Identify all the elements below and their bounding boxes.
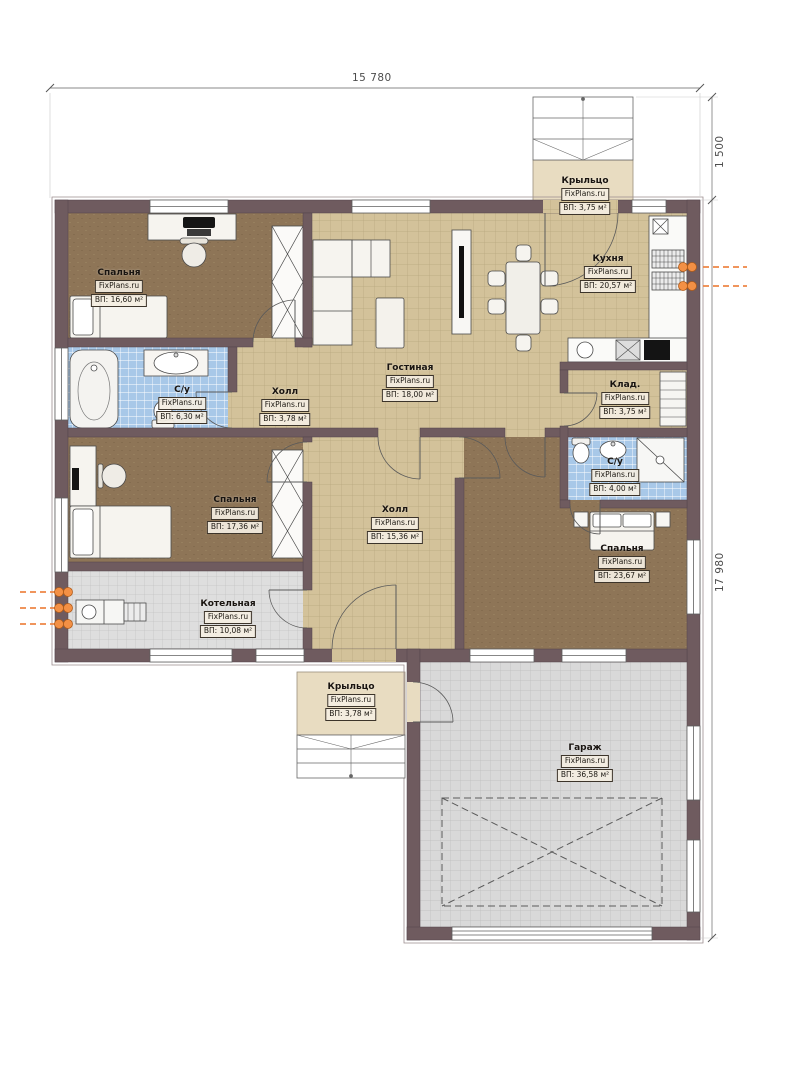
wardrobe-icon	[272, 450, 303, 558]
doorway-porch-bottom	[332, 649, 396, 662]
bathtub-icon	[70, 350, 118, 428]
garage-gate	[452, 927, 652, 940]
doorway-garage-side	[407, 682, 420, 722]
window	[687, 540, 700, 614]
porch-bottom-steps	[297, 735, 405, 778]
shower-icon	[637, 438, 684, 482]
window	[55, 498, 68, 572]
window	[352, 200, 430, 213]
wardrobe-icon	[272, 226, 303, 338]
doorway-porch-top	[543, 200, 618, 213]
window	[687, 726, 700, 800]
dimension-porch-depth: 1 500	[714, 135, 726, 168]
coffee-table-icon	[376, 298, 404, 348]
window	[150, 200, 228, 213]
window	[55, 348, 68, 420]
porch-top-steps	[533, 97, 633, 160]
storage-shelf-icon	[660, 372, 686, 426]
toilet-icon	[152, 401, 174, 428]
bed-icon	[70, 296, 167, 338]
wall-garage-top	[420, 649, 687, 662]
stove-icon	[644, 340, 670, 360]
bed-icon	[70, 506, 171, 558]
floor-garage	[420, 662, 687, 927]
boiler-icon	[76, 600, 146, 624]
window	[562, 649, 626, 662]
window	[632, 200, 666, 213]
floor-plan-canvas: 15 780 1 500 17 980 Спальня FixPlans.ru …	[0, 0, 792, 1080]
dimension-right-height: 17 980	[714, 552, 726, 592]
toilet-icon	[572, 438, 590, 463]
window	[687, 840, 700, 912]
desk-icon	[70, 446, 96, 506]
tv-stand-icon	[452, 230, 471, 334]
office-chair-icon	[98, 464, 126, 488]
sink-icon	[600, 441, 626, 459]
sink-icon	[144, 350, 208, 376]
porch-top-slab	[533, 160, 633, 202]
window	[470, 649, 534, 662]
nightstand-icon	[574, 512, 588, 527]
desk-icon	[148, 214, 236, 240]
porch-bottom-slab	[297, 672, 405, 735]
window	[150, 649, 232, 662]
window	[256, 649, 304, 662]
dimension-top-width: 15 780	[352, 72, 392, 84]
nightstand-icon	[656, 512, 670, 527]
floor-plan-drawing	[0, 0, 792, 1080]
